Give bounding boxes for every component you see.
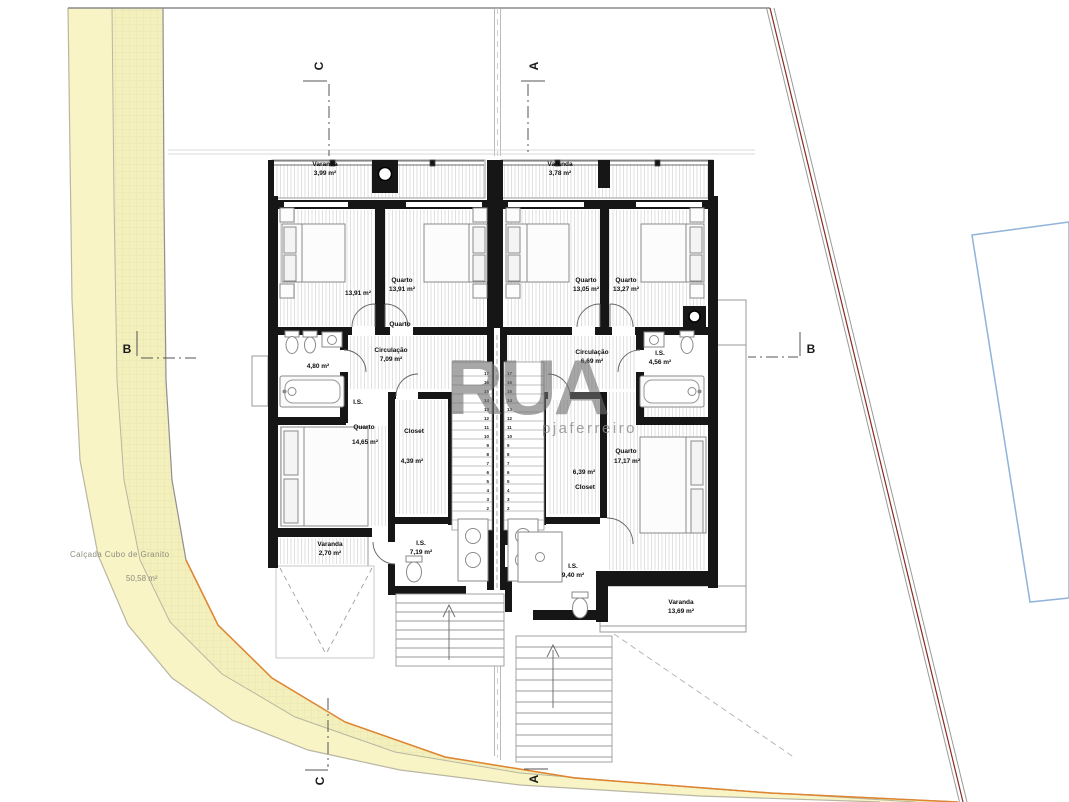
room-label-is-bottom-left: I.S. 7,19 m² xyxy=(410,540,432,557)
shower-icon xyxy=(518,532,562,582)
room-label-is-top-left-name: I.S. xyxy=(353,399,363,406)
room-label-varanda-bottom-right: Varanda 13,69 m² xyxy=(668,599,694,616)
room-label-varanda-top-left: Varanda 3,99 m² xyxy=(312,161,337,178)
driveway-dashed-line xyxy=(614,634,795,758)
room-label-quarto2-right: Quarto 13,27 m² xyxy=(613,277,639,294)
room-label-closet-left-area: 4,39 m² xyxy=(401,458,423,465)
sink-icon xyxy=(644,332,664,347)
bidet-icon xyxy=(303,331,317,353)
section-marker-c-bottom: C xyxy=(313,773,327,789)
street-name-label: Calçada Cubo de Granito xyxy=(70,550,169,559)
room-label-quarto-hall: Quarto xyxy=(389,321,410,328)
exterior-stair-left xyxy=(396,594,504,666)
building-group xyxy=(252,160,795,762)
street-area-label: 50,58 m² xyxy=(126,574,158,583)
vanity-icon xyxy=(458,519,488,581)
toilet-icon xyxy=(680,331,694,354)
section-marker-b-right: B xyxy=(803,342,819,356)
room-label-quarto3-right-name: Quarto xyxy=(615,448,636,455)
room-label-closet-right-name: Closet xyxy=(575,484,595,491)
sink-icon xyxy=(322,332,342,347)
boundary-red-line xyxy=(770,8,963,802)
room-label-is-top-right: I.S. 4,56 m² xyxy=(649,350,671,367)
window-ledge xyxy=(252,356,268,406)
room-label-quarto1-right: Quarto 13,05 m² xyxy=(573,277,599,294)
room-label-is-top-left-area: 4,80 m² xyxy=(307,363,329,370)
side-terrace xyxy=(716,300,746,630)
room-label-closet-left-name: Closet xyxy=(404,428,424,435)
watermark-brand: RUA xyxy=(447,348,607,426)
room-label-varanda-top-right: Varanda 3,78 m² xyxy=(547,161,572,178)
site-plan-canvas: Varanda 3,99 m² Varanda 3,78 m² 13,91 m²… xyxy=(0,0,1069,802)
section-marker-a-bottom: A xyxy=(527,771,541,787)
toilet-icon xyxy=(406,556,422,582)
flue-vent-icon xyxy=(379,168,392,181)
watermark-studio: pjaferreiro xyxy=(542,420,637,437)
room-label-quarto2-left: Quarto 13,91 m² xyxy=(389,277,415,294)
bed-icon xyxy=(640,437,706,533)
bathtub-icon xyxy=(280,376,344,407)
toilet-icon xyxy=(285,331,299,354)
pool-outline xyxy=(972,222,1069,602)
section-marker-a-top: A xyxy=(527,58,541,74)
toilet-icon xyxy=(572,592,588,618)
flue-vent-icon xyxy=(689,311,700,322)
exterior-stair-right xyxy=(516,636,612,762)
room-label-quarto3-left-name: Quarto xyxy=(353,424,374,431)
room-label-varanda-bottom-left: Varanda 2,70 m² xyxy=(317,541,342,558)
room-label-is-bottom-right: I.S. 9,40 m² xyxy=(562,563,584,580)
room-label-closet-right-area: 6,39 m² xyxy=(573,469,595,476)
bathtub-icon xyxy=(640,376,704,407)
section-marker-c-top: C xyxy=(312,58,326,74)
room-label-quarto1-left-area: 13,91 m² xyxy=(345,290,371,297)
room-label-quarto3-left-area: 14,65 m² xyxy=(352,439,378,446)
room-label-quarto3-right-area: 17,17 m² xyxy=(614,458,640,465)
section-marker-b-left: B xyxy=(119,342,135,356)
room-label-circulacao-left: Circulação 7,09 m² xyxy=(374,347,407,364)
